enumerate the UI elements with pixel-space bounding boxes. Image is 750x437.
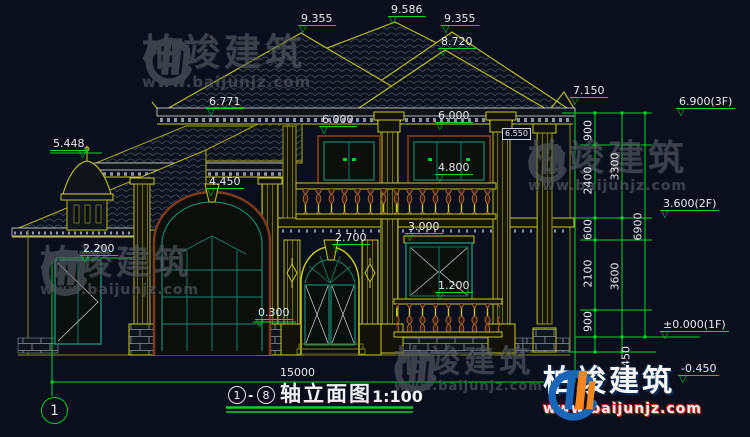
entrance: [281, 240, 381, 355]
dim-600: 600: [583, 206, 594, 254]
watermark-center-left: 柏竣建筑 www.baijunjz.com: [36, 246, 199, 298]
level-triangle-icon: ▽: [677, 108, 685, 118]
level-ridge-front: 8.720▽: [438, 36, 476, 49]
watermark-logo-icon: [138, 34, 196, 96]
level-triangle-icon: ▽: [436, 292, 444, 302]
dim-2400: 2400: [583, 157, 594, 205]
level-win1f-head: 3.000▽: [405, 221, 443, 234]
level-triangle-icon: ▽: [207, 108, 215, 118]
level-plinth: 0.300▽: [255, 307, 293, 320]
title-dash: -: [248, 390, 253, 403]
level-roof-left: 9.355▽: [298, 13, 336, 26]
level-triangle-icon: ▽: [436, 174, 444, 184]
level-triangle-icon: ▽: [333, 244, 341, 254]
baijun-logo-icon: [543, 366, 599, 432]
cad-elevation-screenshot: 柏竣建筑 www.baijunjz.com 柏竣建筑 www.baijunjz.…: [0, 0, 750, 437]
level-triangle-icon: ▽: [442, 25, 450, 35]
dim-900-top: 900: [583, 107, 594, 155]
level-triangle-icon: ▽: [79, 150, 87, 160]
dim-6900: 6900: [633, 203, 644, 251]
level-triangle-icon: ▽: [389, 16, 397, 26]
level-eave-right: 7.150▽: [570, 85, 608, 98]
level-triangle-icon: ▽: [439, 48, 447, 58]
drawing-title: 轴立面图: [280, 384, 372, 405]
level-win2f-right: 6.000▽: [435, 110, 473, 123]
level-triangle-icon: ▽: [436, 122, 444, 132]
level-roof-right: 9.355▽: [441, 13, 479, 26]
level-win1f-rail: 1.200▽: [435, 280, 473, 293]
level-eave-left: 6.771▽: [206, 96, 244, 109]
level-triangle-icon: ▽: [320, 126, 328, 136]
level-door-arch: 2.700▽: [332, 232, 370, 245]
level-ridge-main: 9.586▽: [388, 4, 426, 17]
level-porch-door: 2.200▽: [80, 243, 118, 256]
level-floor1: ±0.000(1F)▽: [660, 319, 729, 332]
dim-3600: 3600: [610, 253, 621, 301]
level-floor3: 6.900(3F)▽: [676, 96, 735, 109]
title-axis-start: 1: [228, 386, 246, 404]
level-win2f-left: 6.000▽: [319, 114, 357, 127]
watermark-right: 柏竣建筑 www.baijunjz.com: [524, 140, 688, 194]
level-triangle-icon: ▽: [207, 188, 215, 198]
level-turret: 5.448▽: [50, 138, 88, 151]
drawing-scale: 1:100: [372, 389, 423, 405]
dim-2100: 2100: [583, 250, 594, 298]
level-triangle-icon: ▽: [299, 25, 307, 35]
dim-3300: 3300: [610, 143, 621, 191]
level-triangle-icon: ▽: [406, 233, 414, 243]
axis-bubble-1: 1: [41, 397, 68, 424]
level-balcony-rail: 4.800▽: [435, 162, 473, 175]
brand-logo-footer: 柏竣建筑 www.baijunjz.com: [543, 366, 750, 417]
level-triangle-icon: ▽: [81, 255, 89, 265]
level-triangle-icon: ▽: [256, 319, 264, 329]
watermark-top-left: 柏竣建筑 www.baijunjz.com: [138, 34, 311, 91]
level-triangle-icon: ▽: [661, 331, 669, 341]
dim-900-bottom: 900: [583, 298, 594, 346]
level-capital-tag: 6.550: [502, 128, 531, 140]
title-axis-end: 8: [257, 386, 275, 404]
level-triangle-icon: ▽: [661, 210, 669, 220]
dim-total-width: 15000: [280, 367, 315, 378]
level-arch-top: 4.450▽: [206, 176, 244, 189]
level-triangle-icon: ▽: [571, 97, 579, 107]
watermark-logo-icon: [524, 140, 568, 192]
level-floor2: 3.600(2F)▽: [660, 198, 719, 211]
turret: [61, 146, 113, 230]
